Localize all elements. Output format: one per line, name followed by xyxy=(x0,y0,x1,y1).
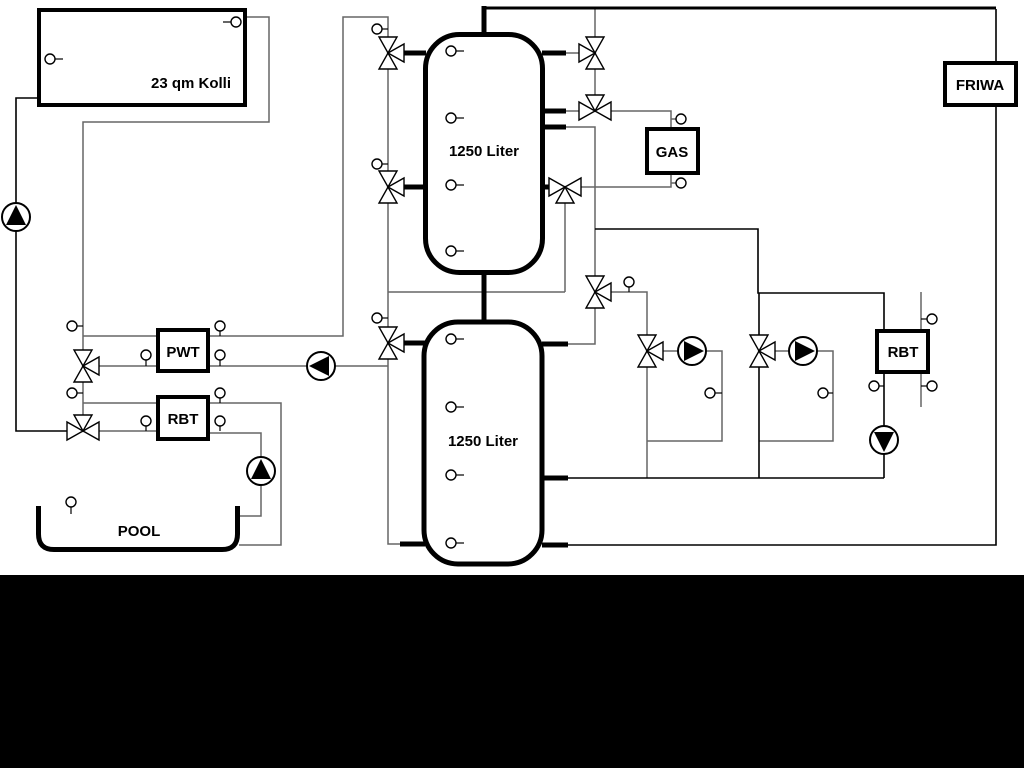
pump-pwt xyxy=(307,352,335,380)
pump-rbt2 xyxy=(870,426,898,454)
schematic-page: 23 qm Kolli 1250 Liter 1250 Liter PWT RB… xyxy=(0,0,1024,768)
tank-top-label: 1250 Liter xyxy=(449,143,519,160)
friwa-label: FRIWA xyxy=(956,77,1004,94)
pwt-label: PWT xyxy=(166,344,199,361)
tank-bottom-label: 1250 Liter xyxy=(448,433,518,450)
rbt-left-label: RBT xyxy=(168,411,199,428)
bottom-black-band xyxy=(0,575,1024,768)
pool-label: POOL xyxy=(118,523,161,540)
collector-label: 23 qm Kolli xyxy=(151,75,231,92)
gas-label: GAS xyxy=(656,144,689,161)
pump-circuit2 xyxy=(789,337,817,365)
pump-pool xyxy=(247,457,275,485)
rbt-right-label: RBT xyxy=(888,344,919,361)
sensor-gas-bottom xyxy=(676,178,686,188)
hydraulic-schematic: 23 qm Kolli 1250 Liter 1250 Liter PWT RB… xyxy=(0,0,1024,768)
sensor-gas-top xyxy=(676,114,686,124)
pump-circuit1 xyxy=(678,337,706,365)
pump-solar xyxy=(2,203,30,231)
